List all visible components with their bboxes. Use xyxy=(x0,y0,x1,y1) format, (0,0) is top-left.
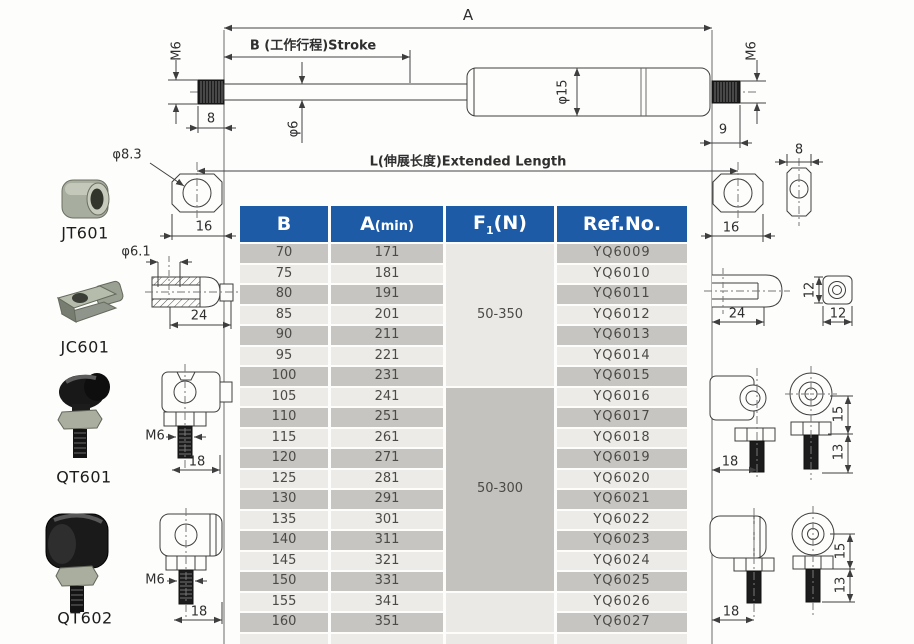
col-header-ref-text: Ref.No. xyxy=(583,213,661,235)
col-header-b-text: B xyxy=(277,213,291,235)
eye-end-left-view xyxy=(150,162,236,240)
fitting-label-qt602: QT602 xyxy=(57,609,112,628)
fitting-label-qt601: QT601 xyxy=(56,468,111,487)
cell-b: 85 xyxy=(240,306,328,325)
cell-a-min: 171 xyxy=(331,244,443,263)
dim-8-left-label: 8 xyxy=(207,112,215,127)
dim-extended-length-label: L(伸展长度)Extended Length xyxy=(370,151,567,170)
col-header-a-sub-text: (min) xyxy=(375,219,414,234)
dim-13-qt602-label: 13 xyxy=(834,577,849,594)
cell-a-min xyxy=(331,634,443,644)
cell-a-min: 281 xyxy=(331,470,443,489)
dim-15-qt601-label: 15 xyxy=(832,406,847,423)
cell-b: 95 xyxy=(240,347,328,366)
cell-ref-no: YQ6014 xyxy=(557,347,687,366)
right-thread xyxy=(712,81,740,103)
table-row-partial xyxy=(240,634,687,644)
cell-a-min: 261 xyxy=(331,429,443,448)
cell-b: 115 xyxy=(240,429,328,448)
cell-force-range: 50-350 xyxy=(446,244,554,386)
cell-b: 80 xyxy=(240,285,328,304)
spec-table-body: 7017150-350YQ600975181YQ601080191YQ60118… xyxy=(240,244,687,644)
dim-12-horizontal-label: 12 xyxy=(830,307,847,322)
cell-b: 75 xyxy=(240,265,328,284)
cell-a-min: 301 xyxy=(331,511,443,530)
col-header-f-unit-text: (N) xyxy=(494,212,527,234)
cell-b: 110 xyxy=(240,408,328,427)
cell-a-min: 311 xyxy=(331,531,443,550)
dim-9-right-label: 9 xyxy=(719,123,727,138)
col-header-b: B xyxy=(240,206,328,242)
dim-24-center-label: 24 xyxy=(191,309,208,324)
cell-ref-no: YQ6013 xyxy=(557,326,687,345)
piston-rod xyxy=(224,84,467,100)
spec-table-header: B A(min) F1(N) Ref.No. xyxy=(240,206,687,242)
cell-ref-no: YQ6019 xyxy=(557,449,687,468)
cell-a-min: 341 xyxy=(331,593,443,612)
cell-a-min: 181 xyxy=(331,265,443,284)
cell-b: 120 xyxy=(240,449,328,468)
dim-phi15-label: φ15 xyxy=(556,79,571,104)
fitting-label-jt601: JT601 xyxy=(61,224,109,243)
cell-ref-no: YQ6011 xyxy=(557,285,687,304)
qt602-photo xyxy=(46,514,108,612)
dim-16-right-label: 16 xyxy=(723,221,740,236)
cell-ref-no: YQ6021 xyxy=(557,490,687,509)
cell-a-min: 331 xyxy=(331,572,443,591)
dim-m6-qt601-label: M6 xyxy=(145,429,165,444)
col-header-a-text: A xyxy=(360,213,375,235)
dim-24-right-label: 24 xyxy=(729,307,746,322)
cell-ref-no: YQ6022 xyxy=(557,511,687,530)
cell-a-min: 241 xyxy=(331,388,443,407)
cell-a-min: 211 xyxy=(331,326,443,345)
cell-ref-no: YQ6026 xyxy=(557,593,687,612)
cell-a-min: 321 xyxy=(331,552,443,571)
dim-12-vertical-label: 12 xyxy=(803,282,818,299)
cell-b: 100 xyxy=(240,367,328,386)
table-row: 7017150-350YQ6009 xyxy=(240,244,687,263)
dim-18-qt602-right-label: 18 xyxy=(723,605,740,620)
dim-18-qt601-center-label: 18 xyxy=(189,455,206,470)
col-header-a-min: A(min) xyxy=(331,206,443,242)
left-thread xyxy=(198,80,224,104)
cell-b: 70 xyxy=(240,244,328,263)
cell-b: 130 xyxy=(240,490,328,509)
cell-a-min: 351 xyxy=(331,613,443,632)
cell-b: 125 xyxy=(240,470,328,489)
table-row: 10524150-300YQ6016 xyxy=(240,388,687,407)
cell-ref-no: YQ6018 xyxy=(557,429,687,448)
cell-a-min: 221 xyxy=(331,347,443,366)
dim-18-qt601-right-label: 18 xyxy=(722,455,739,470)
cell-a-min: 291 xyxy=(331,490,443,509)
table-row: 155341YQ6026 xyxy=(240,593,687,612)
cell-b: 140 xyxy=(240,531,328,550)
cell-b: 160 xyxy=(240,613,328,632)
gas-spring-drawing xyxy=(190,68,756,116)
col-header-f-subscript: 1 xyxy=(486,223,494,236)
cell-b: 155 xyxy=(240,593,328,612)
cell-b xyxy=(240,634,328,644)
dim-a-label: A xyxy=(463,6,473,24)
cell-a-min: 191 xyxy=(331,285,443,304)
cell-ref-no: YQ6023 xyxy=(557,531,687,550)
dim-13-qt601-label: 13 xyxy=(832,444,847,461)
cell-ref-no: YQ6027 xyxy=(557,613,687,632)
cell-a-min: 271 xyxy=(331,449,443,468)
dim-18-qt602-center-label: 18 xyxy=(191,605,208,620)
gas-spring-spec-sheet: A B (工作行程)Stroke M6 M6 φ6 φ15 8 9 L(伸展长度… xyxy=(0,0,914,644)
cell-b: 90 xyxy=(240,326,328,345)
cell-force-range xyxy=(446,634,554,644)
qt602-right-drawing xyxy=(710,506,855,620)
col-header-f1n: F1(N) xyxy=(446,206,554,242)
qt601-photo xyxy=(58,373,110,458)
jc601-photo xyxy=(58,280,124,322)
cell-a-min: 231 xyxy=(331,367,443,386)
cell-ref-no: YQ6010 xyxy=(557,265,687,284)
dim-phi6-1-label: φ6.1 xyxy=(121,245,150,260)
cell-b: 150 xyxy=(240,572,328,591)
fitting-label-jc601: JC601 xyxy=(61,338,110,357)
cell-a-min: 251 xyxy=(331,408,443,427)
spec-table: B A(min) F1(N) Ref.No. 7017150-350YQ6009… xyxy=(237,204,690,644)
cell-ref-no: YQ6017 xyxy=(557,408,687,427)
dim-phi6-label: φ6 xyxy=(287,121,302,138)
col-header-ref-no: Ref.No. xyxy=(557,206,687,242)
col-header-f-text: F xyxy=(473,212,486,234)
cell-b: 145 xyxy=(240,552,328,571)
cylinder-body xyxy=(467,68,710,116)
cell-ref-no: YQ6016 xyxy=(557,388,687,407)
cell-ref-no: YQ6015 xyxy=(557,367,687,386)
cell-b: 135 xyxy=(240,511,328,530)
dim-16-left-label: 16 xyxy=(196,220,213,235)
cell-ref-no: YQ6009 xyxy=(557,244,687,263)
cell-ref-no: YQ6020 xyxy=(557,470,687,489)
cell-b: 105 xyxy=(240,388,328,407)
dim-m6-right-label: M6 xyxy=(745,41,760,61)
dim-phi8-3-label: φ8.3 xyxy=(112,148,141,163)
cell-a-min: 201 xyxy=(331,306,443,325)
dim-15-qt602-label: 15 xyxy=(834,543,849,560)
dim-m6-left-label: M6 xyxy=(170,41,185,61)
dim-m6-qt602-label: M6 xyxy=(145,573,165,588)
dim-8-eye-side-label: 8 xyxy=(795,143,803,158)
eye-end-right-view xyxy=(701,154,823,242)
cell-force-range: 50-300 xyxy=(446,388,554,591)
cell-ref-no xyxy=(557,634,687,644)
dim-b-stroke-label: B (工作行程)Stroke xyxy=(250,35,376,54)
cell-force-range xyxy=(446,593,554,632)
jt601-photo xyxy=(62,180,109,218)
cell-ref-no: YQ6012 xyxy=(557,306,687,325)
cell-ref-no: YQ6024 xyxy=(557,552,687,571)
cell-ref-no: YQ6025 xyxy=(557,572,687,591)
